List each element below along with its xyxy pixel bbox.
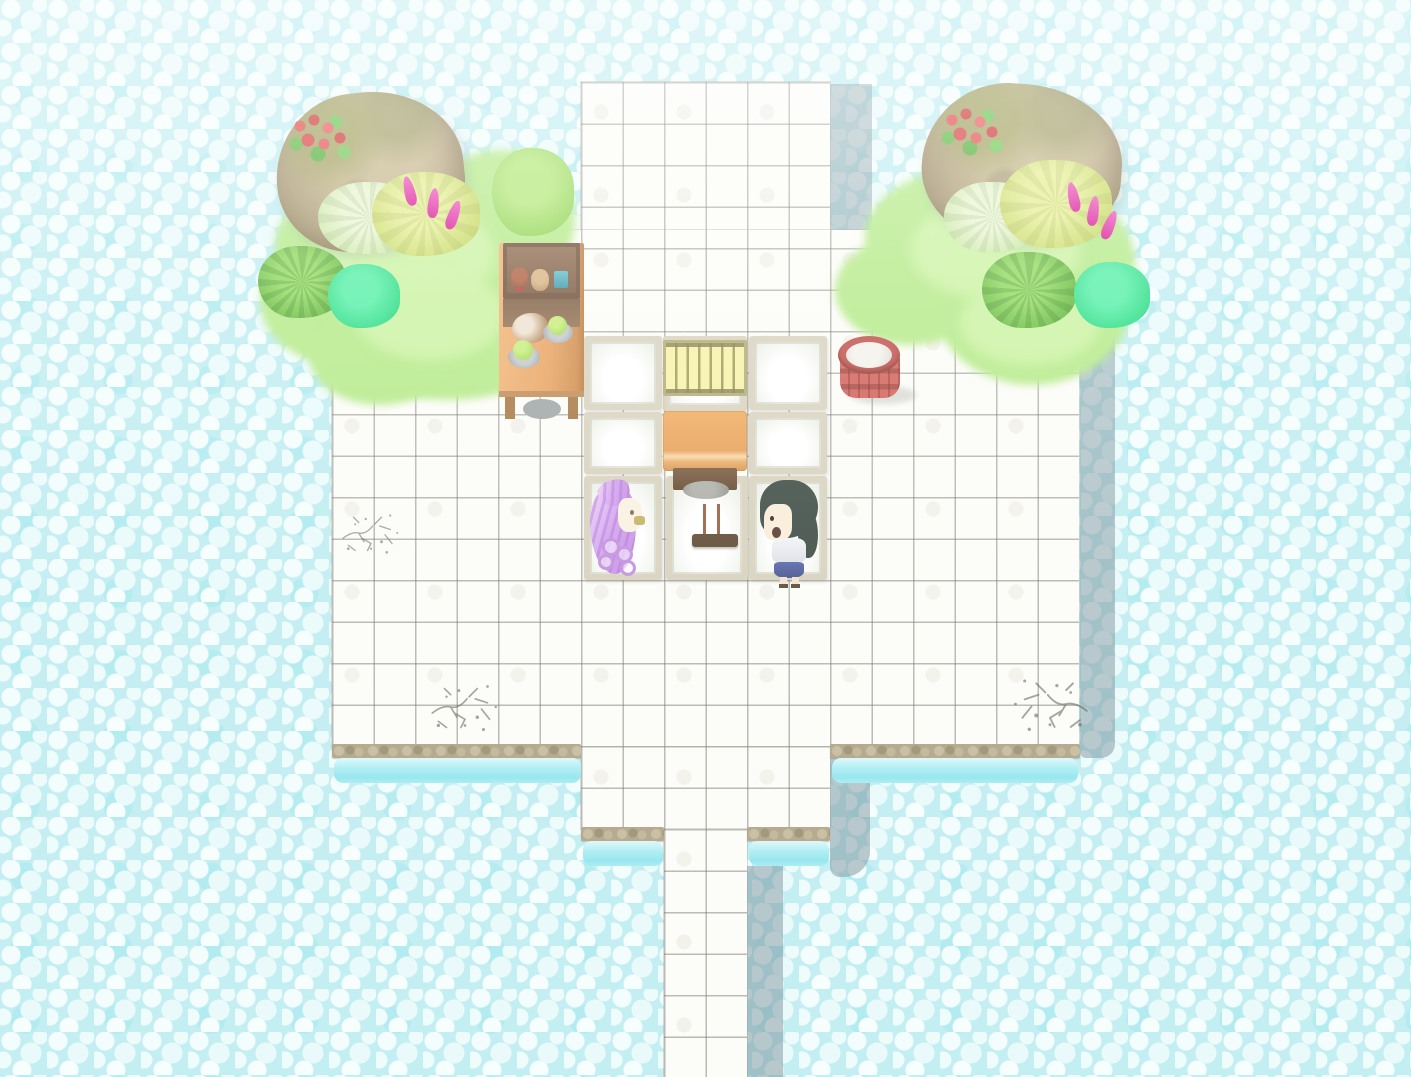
- rock-flowers: [942, 108, 1014, 174]
- stone-trim: [581, 827, 664, 841]
- rock-flowers: [290, 114, 360, 178]
- tile-walkway: [664, 829, 747, 1077]
- floor-crack: [1004, 658, 1096, 750]
- npc-lavender-hair[interactable]: [590, 482, 652, 577]
- shoji-panel: [584, 412, 662, 474]
- fern-bush: [982, 252, 1076, 328]
- doll: [531, 269, 549, 291]
- water-edge: [334, 758, 581, 783]
- barrel-water: [846, 342, 892, 368]
- stone-trim: [747, 827, 830, 841]
- water-edge: [749, 841, 829, 866]
- incense-tray: [692, 534, 738, 547]
- green-fruit: [513, 340, 533, 360]
- cat: [512, 313, 548, 343]
- tile-floor-south-wing: [581, 747, 830, 829]
- floor-crack: [424, 666, 506, 748]
- incense-stick: [717, 504, 720, 537]
- yellow-green-bush: [372, 172, 480, 256]
- game-viewport[interactable]: [0, 0, 1411, 1077]
- shoji-panel: [749, 336, 827, 410]
- water-edge: [832, 758, 1078, 783]
- wooden-table: [663, 411, 747, 471]
- shoji-panel: [584, 336, 662, 410]
- shoji-panel: [749, 412, 827, 474]
- round-green-bush: [492, 148, 574, 236]
- walkway-shadow: [747, 866, 783, 1077]
- teal-bush: [1074, 262, 1150, 328]
- water-edge: [583, 841, 663, 866]
- blue-box: [554, 271, 568, 288]
- teddy-bear: [511, 267, 528, 288]
- incense-stick: [703, 504, 706, 537]
- teal-bush: [328, 264, 400, 328]
- floor-crack: [336, 498, 406, 568]
- floor-cushion: [683, 481, 729, 499]
- bamboo-mat: [663, 340, 747, 396]
- green-fruit: [548, 316, 567, 335]
- npc-dark-green-hair[interactable]: [758, 480, 822, 588]
